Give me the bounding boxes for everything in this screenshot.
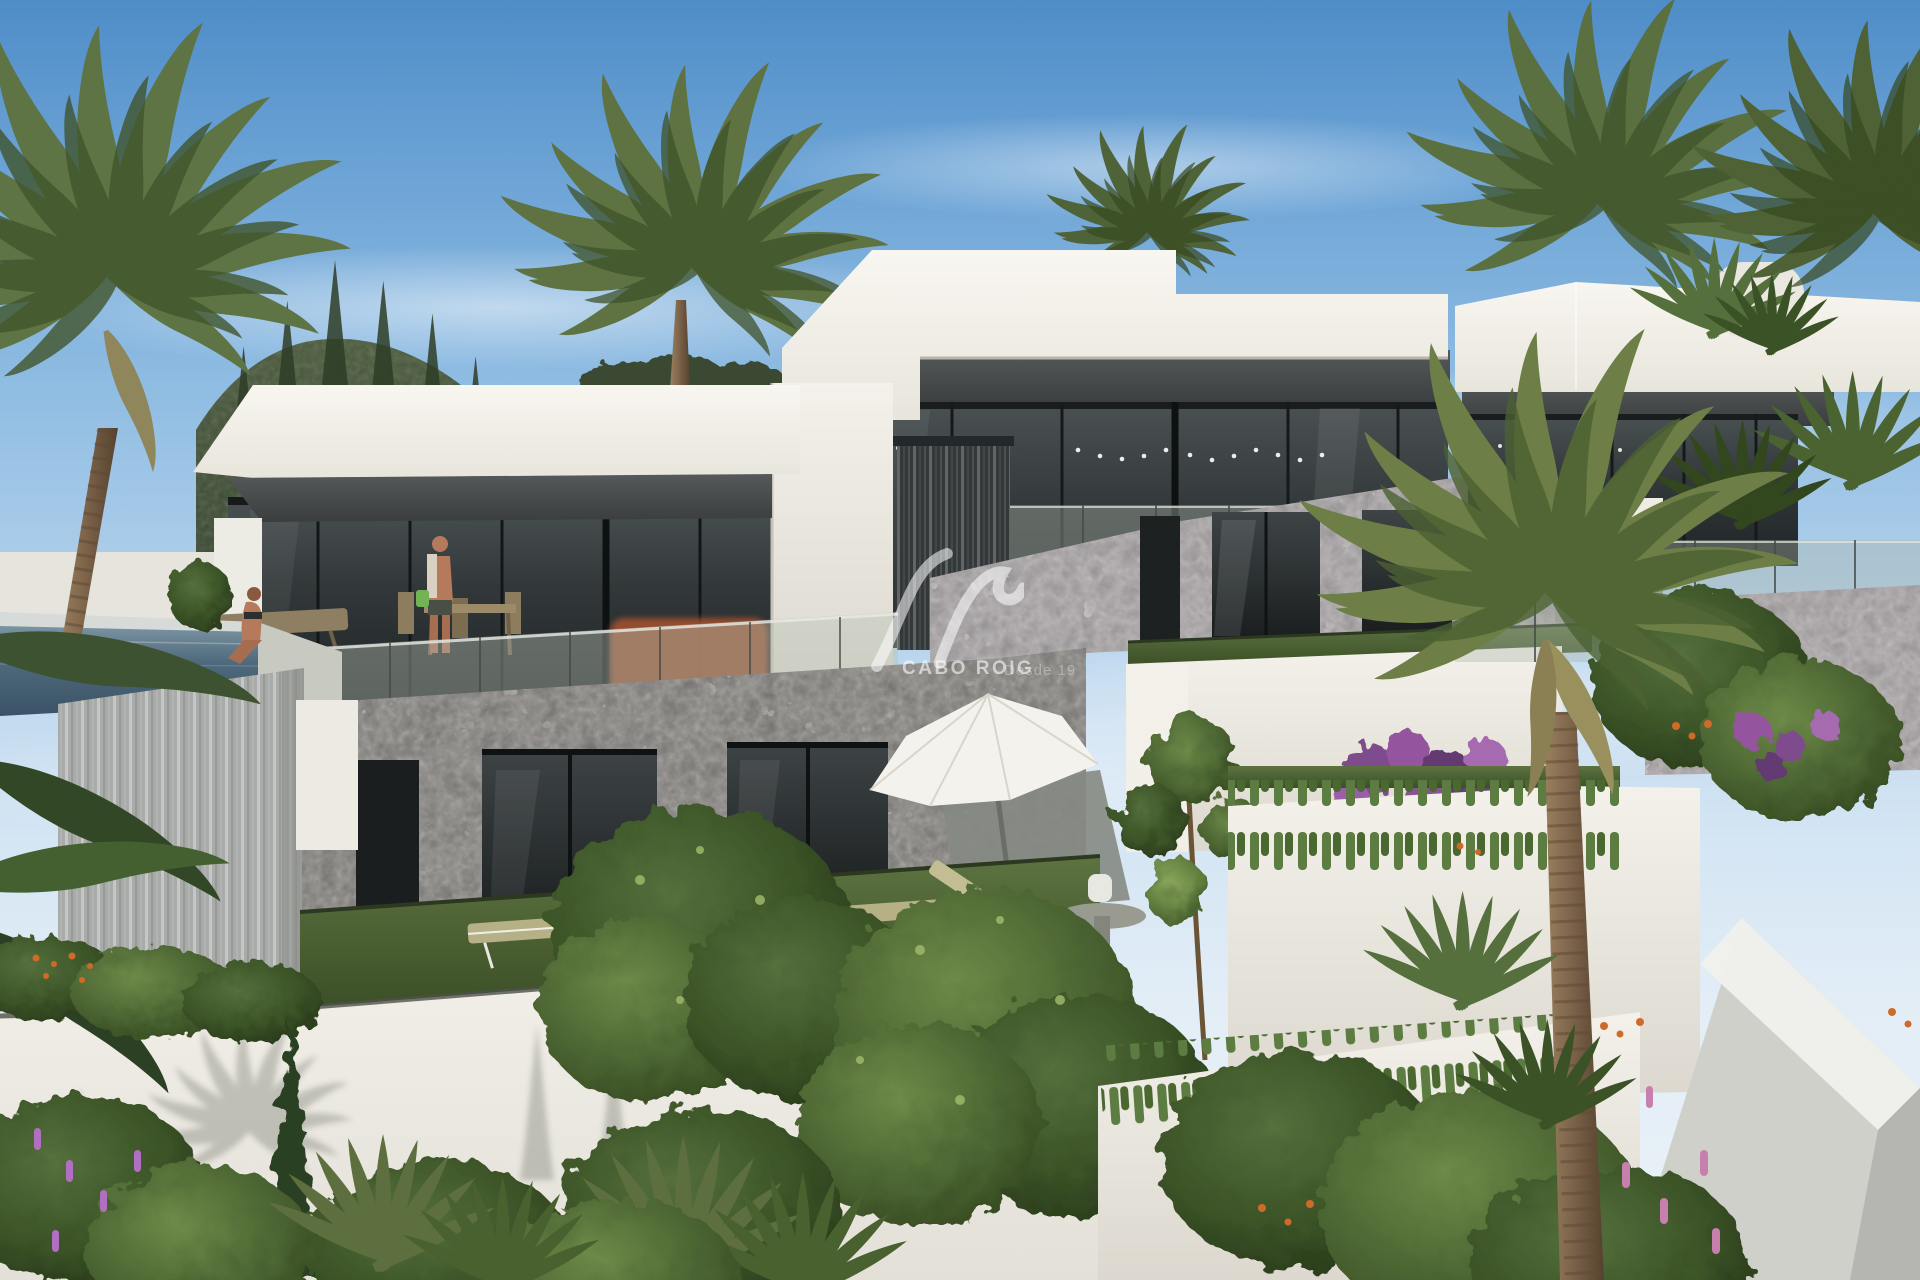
scene-graphics (0, 0, 1920, 1280)
white-pillar (296, 700, 358, 850)
render-scene: CABO ROIG Desde 19 (0, 0, 1920, 1280)
villa-left-soffit (228, 474, 772, 522)
villa-left-roof (193, 385, 800, 478)
stone-level-door (356, 760, 419, 920)
stone-wall-door (1140, 516, 1180, 642)
poolside-bush (168, 562, 232, 630)
kettle (1088, 874, 1112, 902)
green-bag (416, 590, 429, 607)
